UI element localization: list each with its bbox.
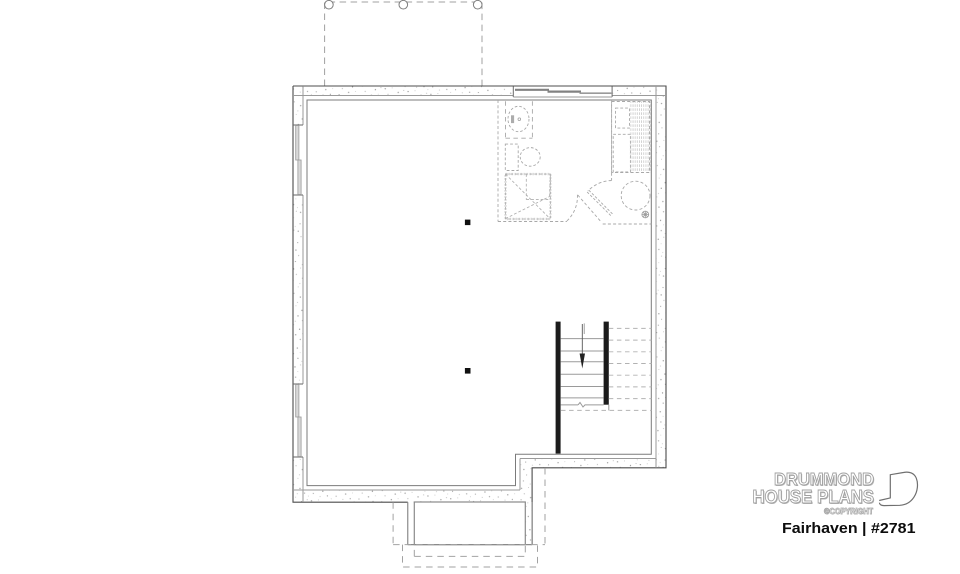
svg-text:©COPYRIGHT: ©COPYRIGHT (824, 507, 873, 516)
svg-text:HOUSE PLANS: HOUSE PLANS (753, 486, 875, 507)
svg-text:Fairhaven | #2781: Fairhaven | #2781 (782, 521, 916, 537)
